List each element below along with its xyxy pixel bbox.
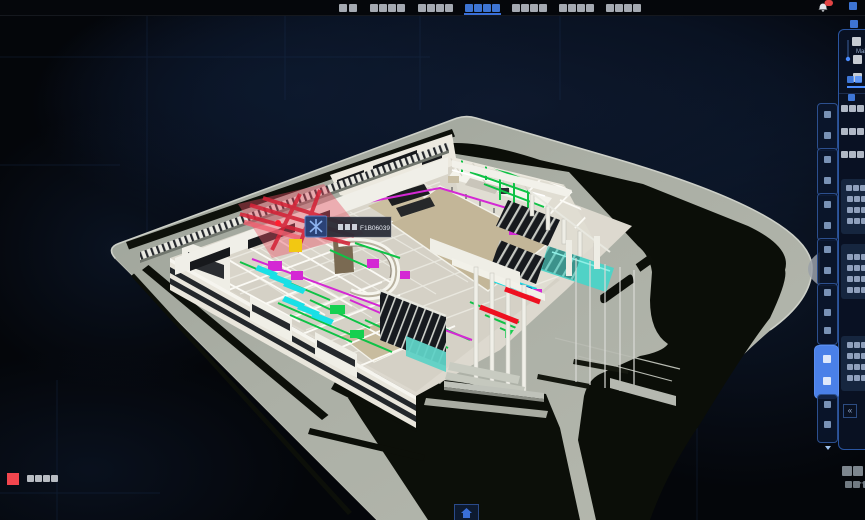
svg-text:F1B06039: F1B06039 [360,225,390,232]
